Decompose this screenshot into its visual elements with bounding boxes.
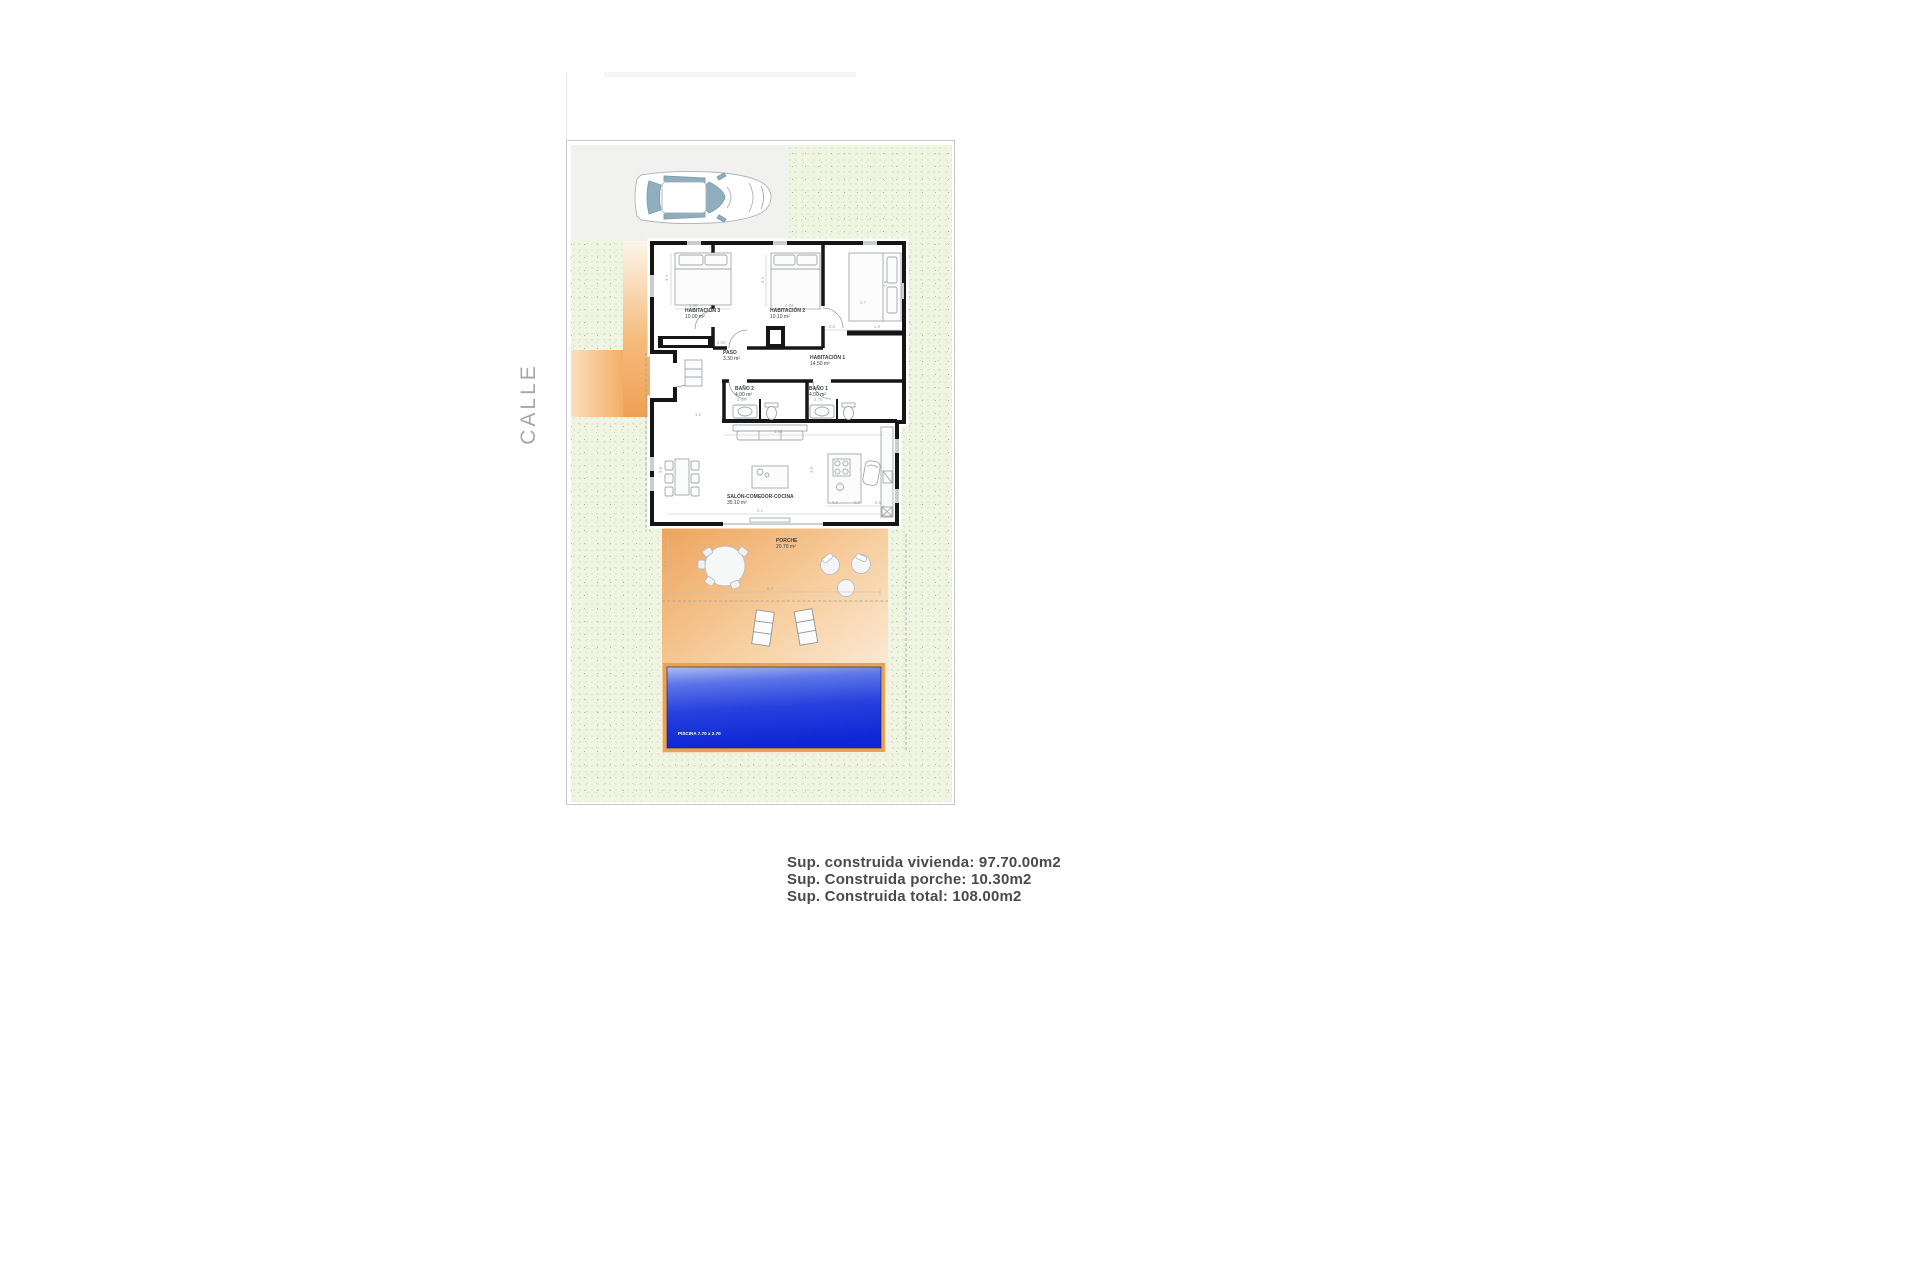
dim-bano2: 2.65 <box>737 397 746 402</box>
dim-salon-bottom: 5.1 <box>757 508 764 513</box>
pool-label: PISCINA 7.70 x 2.70 <box>678 731 721 736</box>
dim-hab3-depth: 3.4 <box>664 274 669 281</box>
dim-salon-top: 6.95 <box>774 429 783 434</box>
page-background: { "street_label": "CALLE", "plan": { "ro… <box>0 0 1920 1280</box>
svg-text:10.10 m²: 10.10 m² <box>770 314 790 320</box>
dim-hab1-b: 1.8 <box>874 324 881 329</box>
dim-hab3-width: 2.86 <box>689 303 698 308</box>
dim-kitchen-a: 0.9 <box>832 500 839 505</box>
dim-paso: 2.02 <box>717 340 726 345</box>
svg-text:20.70 m²: 20.70 m² <box>776 544 796 550</box>
area-summary: Sup. construida vivienda: 97.70.00m2 Sup… <box>787 854 1061 905</box>
dim-kitchen-b: 0.9 <box>854 500 861 505</box>
street-label: CALLE <box>517 363 541 445</box>
car-icon <box>635 171 771 223</box>
room-label-salon: SALÓN-COMEDOR-COCINA <box>727 492 794 500</box>
page-left-edge <box>566 72 567 140</box>
pool <box>663 663 885 752</box>
dim-hab2-depth: 3.4 <box>760 276 765 283</box>
dim-hab1-width: 2.7 <box>860 300 867 305</box>
dim-hab1-a: 6.8 <box>829 324 836 329</box>
dim-porch-depth: 1.7 <box>663 560 668 567</box>
entrance-path <box>571 350 623 417</box>
svg-text:3.30 m²: 3.30 m² <box>723 356 740 362</box>
dim-hall: 1.6 <box>695 412 702 417</box>
site-plan: HABITACIÓN 3 10.00 m² HABITACIÓN 2 10.10… <box>566 140 955 805</box>
page-top-edge <box>604 72 856 77</box>
room-label-bano2: BAÑO 2 <box>735 385 754 392</box>
dim-salon-right: 3.8 <box>809 466 814 473</box>
floor-plan-svg: HABITACIÓN 3 10.00 m² HABITACIÓN 2 10.10… <box>567 141 956 806</box>
svg-text:14.50 m²: 14.50 m² <box>810 361 830 367</box>
room-label-hab1: HABITACIÓN 1 <box>810 353 845 361</box>
svg-text:35.10 m²: 35.10 m² <box>727 500 747 506</box>
dim-hab1-depth: 2.8 <box>883 280 888 287</box>
summary-line-porche: Sup. Construida porche: 10.30m2 <box>787 871 1061 888</box>
summary-line-total: Sup. Construida total: 108.00m2 <box>787 888 1061 905</box>
dim-kitchen-c: 0.8 <box>875 500 882 505</box>
svg-text:10.00 m²: 10.00 m² <box>685 314 705 320</box>
dim-bano1: 2.75 <box>814 397 823 402</box>
dim-salon-left: 3.8 <box>658 466 663 473</box>
dim-porch-width: 8.2 <box>767 586 774 591</box>
summary-line-vivienda: Sup. construida vivienda: 97.70.00m2 <box>787 854 1061 871</box>
room-label-bano1: BAÑO 1 <box>809 385 828 392</box>
dim-hab2-width: 2.84 <box>785 303 794 308</box>
